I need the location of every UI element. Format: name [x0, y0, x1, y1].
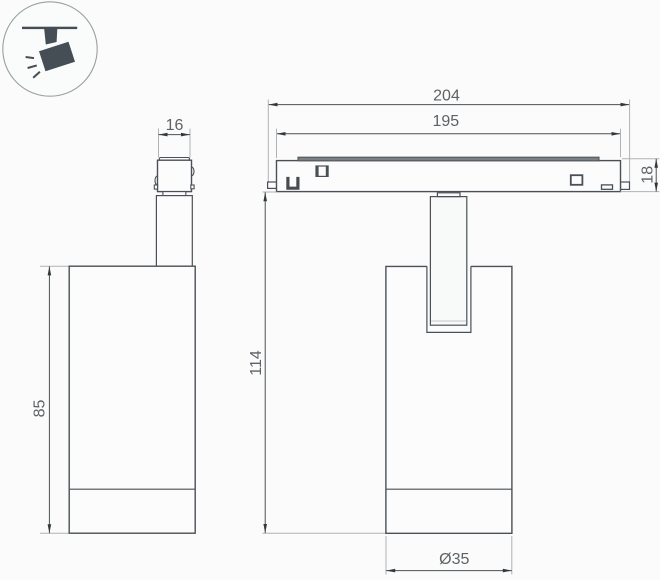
svg-text:85: 85	[32, 400, 49, 418]
svg-text:Ø35: Ø35	[439, 551, 469, 568]
svg-text:18: 18	[639, 166, 656, 184]
svg-text:16: 16	[166, 117, 184, 134]
svg-text:204: 204	[433, 88, 460, 105]
svg-text:114: 114	[248, 350, 265, 376]
svg-text:195: 195	[432, 113, 459, 130]
